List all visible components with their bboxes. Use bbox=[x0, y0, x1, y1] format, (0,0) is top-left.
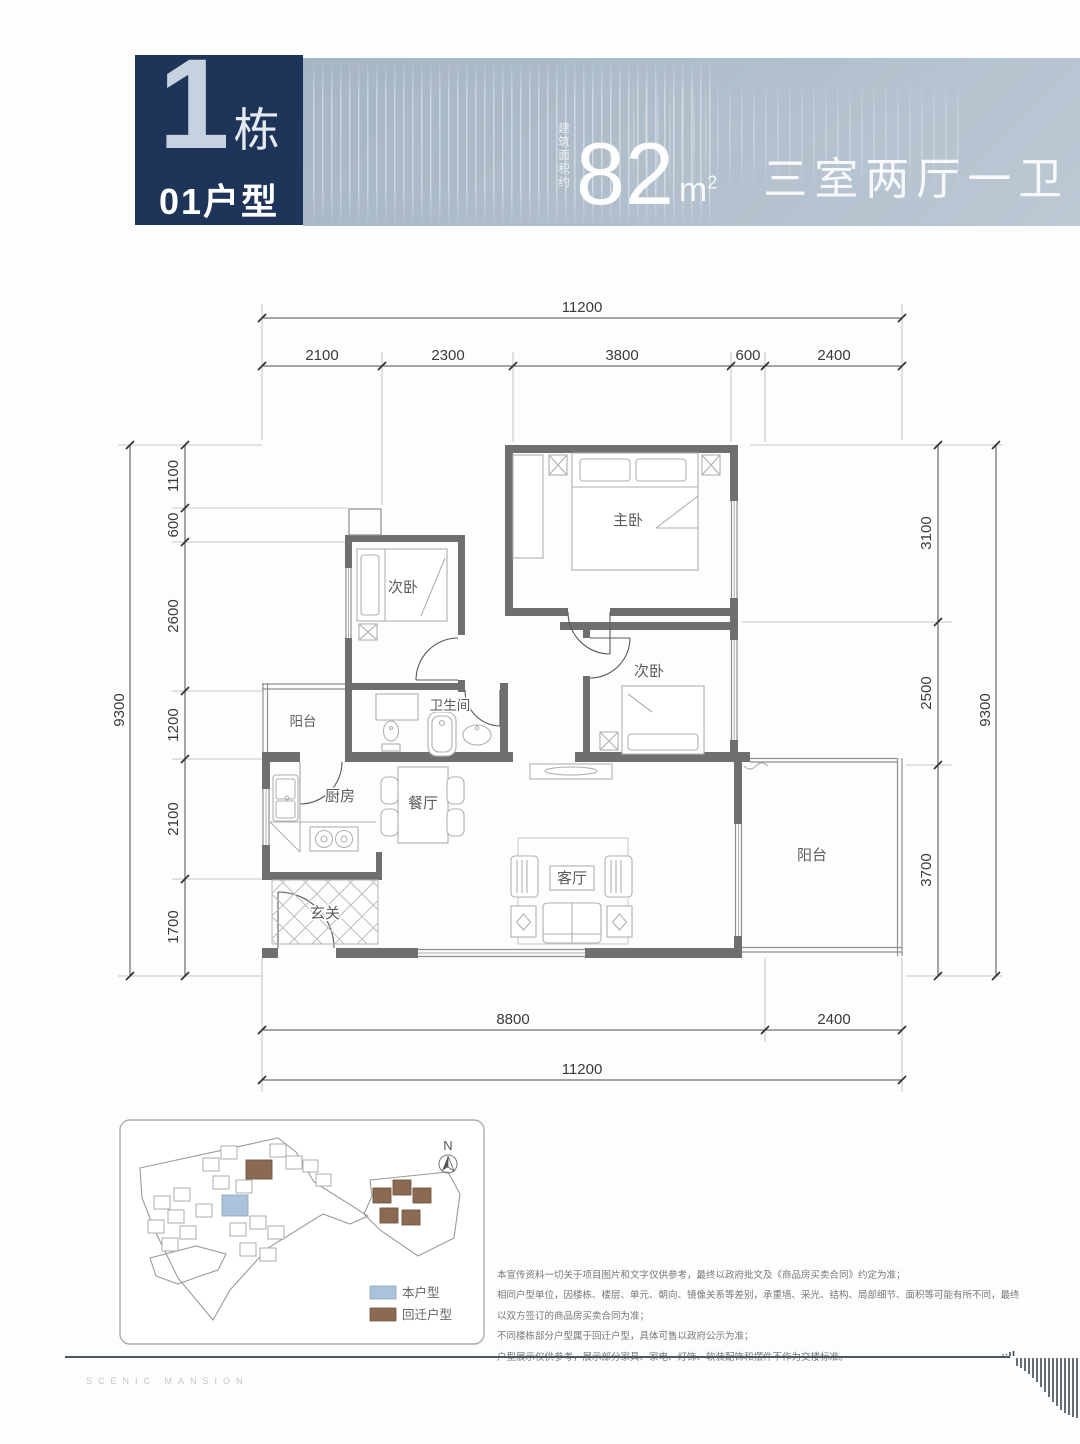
site-building-relocation bbox=[246, 1160, 272, 1179]
footer-rule bbox=[65, 1356, 1010, 1358]
north-label: N bbox=[443, 1138, 452, 1153]
room-label-master: 主卧 bbox=[613, 512, 643, 529]
disclaimer-line: 相同户型单位，因楼栋、楼层、单元、朝向、镜像关系等差别，承重墙、采光、结构、局部… bbox=[497, 1286, 1022, 1327]
dim-right-total: 9300 bbox=[977, 693, 994, 726]
dim-bottom-total: 11200 bbox=[562, 1061, 603, 1078]
room-label-foyer: 玄关 bbox=[310, 905, 340, 922]
building-suffix: 栋 bbox=[234, 112, 280, 149]
room-label-bedroom2: 次卧 bbox=[388, 579, 418, 596]
dim-left-seg: 600 bbox=[165, 512, 182, 537]
room-label-balcony-left: 阳台 bbox=[290, 714, 317, 729]
dim-left-total: 9300 bbox=[111, 693, 128, 726]
header-banner: 建筑面积约 82 m2 三室两厅一卫 bbox=[303, 58, 1080, 226]
room-label-kitchen: 厨房 bbox=[325, 788, 355, 805]
area-prefix-label: 建筑面积约 bbox=[555, 122, 571, 202]
furniture-bedroom3 bbox=[600, 686, 704, 754]
layout-spec: 三室两厅一卫 bbox=[763, 143, 1069, 207]
legend-swatch-relocation bbox=[370, 1308, 396, 1321]
dim-right-seg: 3100 bbox=[918, 516, 935, 549]
dim-left-seg: 1100 bbox=[165, 460, 182, 492]
banner-content: 建筑面积约 82 m2 三室两厅一卫 bbox=[555, 122, 1069, 210]
footer-line-fan-decoration bbox=[1002, 1312, 1080, 1422]
dim-right-seg: 2500 bbox=[918, 676, 935, 709]
floorplan-poster: 1 栋 01户型 建筑面积约 82 m2 三室两厅一卫 bbox=[0, 0, 1080, 1444]
room-label-balcony-right: 阳台 bbox=[797, 847, 827, 864]
furniture-living bbox=[511, 763, 768, 944]
legend-swatch-this-unit bbox=[370, 1286, 396, 1299]
building-badge: 1 栋 01户型 bbox=[135, 55, 303, 225]
dim-bottom-seg: 2400 bbox=[817, 1011, 850, 1028]
area-unit: m2 bbox=[679, 173, 717, 207]
legend-label-this-unit: 本户型 bbox=[402, 1285, 440, 1300]
dim-top-seg: 3800 bbox=[605, 347, 638, 364]
legend-label-relocation: 回迁户型 bbox=[402, 1307, 452, 1322]
disclaimer-line: 本宣传资料一切关于项目图片和文字仅供参考，最终以政府批文及《商品房买卖合同》约定… bbox=[497, 1266, 1022, 1286]
dim-bottom-seg: 8800 bbox=[496, 1011, 529, 1028]
room-label-bedroom3: 次卧 bbox=[634, 663, 664, 680]
area-unit-base: m bbox=[679, 171, 707, 209]
dim-left-seg: 2100 bbox=[165, 802, 182, 835]
room-label-living: 客厅 bbox=[557, 870, 587, 887]
brand-wordmark: SCENIC MANSION bbox=[86, 1376, 249, 1386]
building-number: 1 bbox=[158, 55, 229, 155]
dim-top-seg: 600 bbox=[735, 347, 760, 364]
site-plan: N 本户型 回迁户型 bbox=[118, 1118, 486, 1346]
floorplan-drawing: 11200 2100 2300 3800 600 2400 9300 1100 … bbox=[0, 280, 1080, 1120]
dim-left-seg: 1700 bbox=[165, 910, 182, 943]
area-value: 82 bbox=[576, 138, 674, 210]
dim-top-seg: 2300 bbox=[431, 347, 464, 364]
site-building-this-unit bbox=[222, 1195, 248, 1216]
dimension-right: 3100 2500 3700 9300 bbox=[742, 441, 1002, 980]
dim-right-seg: 3700 bbox=[918, 853, 935, 886]
room-label-bath: 卫生间 bbox=[430, 698, 471, 713]
room-label-dining: 餐厅 bbox=[408, 795, 438, 812]
building-number-row: 1 栋 bbox=[158, 55, 279, 155]
dim-top-seg: 2100 bbox=[305, 347, 338, 364]
dim-top-total: 11200 bbox=[562, 299, 603, 316]
dimension-bottom: 8800 2400 11200 bbox=[258, 958, 906, 1092]
dim-left-seg: 2600 bbox=[165, 599, 182, 632]
dim-left-seg: 1200 bbox=[165, 708, 182, 741]
area-unit-sup: 2 bbox=[707, 173, 717, 193]
dim-top-seg: 2400 bbox=[817, 347, 850, 364]
unit-type-label: 01户型 bbox=[159, 173, 279, 225]
disclaimer-block: 本宣传资料一切关于项目图片和文字仅供参考，最终以政府批文及《商品房买卖合同》约定… bbox=[497, 1266, 1022, 1368]
disclaimer-line: 不同楼栋部分户型属于回迁户型，具体可售以政府公示为准； bbox=[497, 1327, 1022, 1347]
furniture-kitchen bbox=[270, 762, 376, 852]
